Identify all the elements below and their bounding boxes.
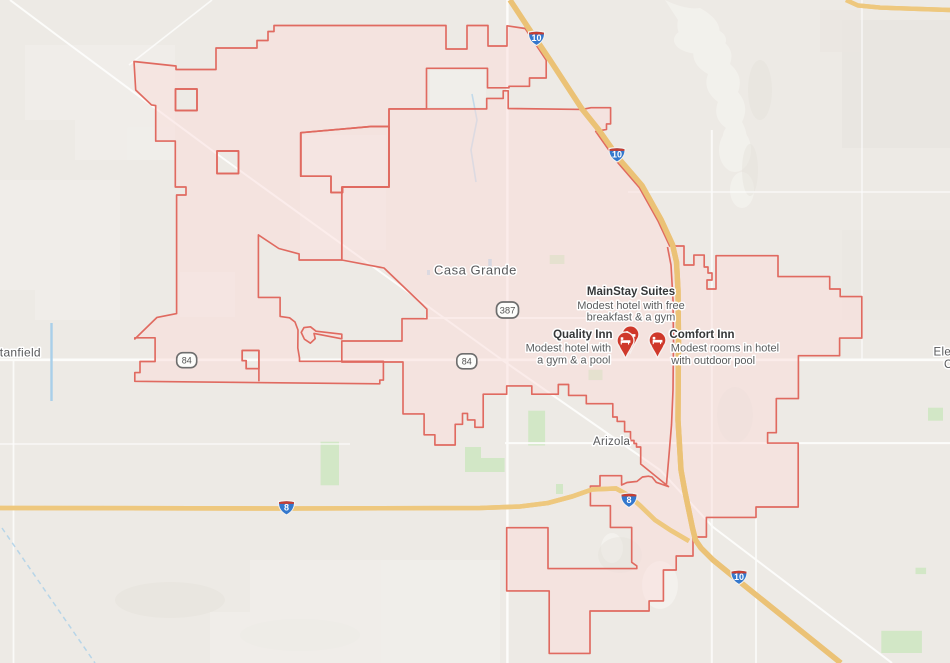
svg-text:Modest hotel with: Modest hotel with [526,342,612,354]
svg-text:with outdoor pool: with outdoor pool [670,355,755,367]
svg-text:10: 10 [531,33,541,43]
svg-text:Modest hotel with free: Modest hotel with free [577,300,685,312]
svg-text:8: 8 [626,495,631,505]
svg-text:84: 84 [462,357,472,367]
svg-text:a gym & a pool: a gym & a pool [537,354,610,366]
svg-text:Modest rooms in hotel: Modest rooms in hotel [671,343,779,355]
svg-text:Casa Grande: Casa Grande [434,263,517,278]
svg-text:8: 8 [284,503,289,513]
svg-text:10: 10 [734,572,744,582]
svg-text:Stanfield: Stanfield [0,346,41,360]
svg-text:10: 10 [612,150,622,160]
svg-text:breakfast & a gym: breakfast & a gym [587,312,676,324]
svg-text:84: 84 [182,355,192,365]
svg-text:C: C [944,359,950,371]
svg-text:Arizola: Arizola [593,436,631,448]
svg-text:MainStay Suites: MainStay Suites [587,286,675,298]
svg-text:Quality Inn: Quality Inn [553,329,612,341]
svg-text:Comfort Inn: Comfort Inn [669,329,734,341]
svg-text:387: 387 [500,305,516,316]
svg-text:Ele: Ele [934,347,950,359]
